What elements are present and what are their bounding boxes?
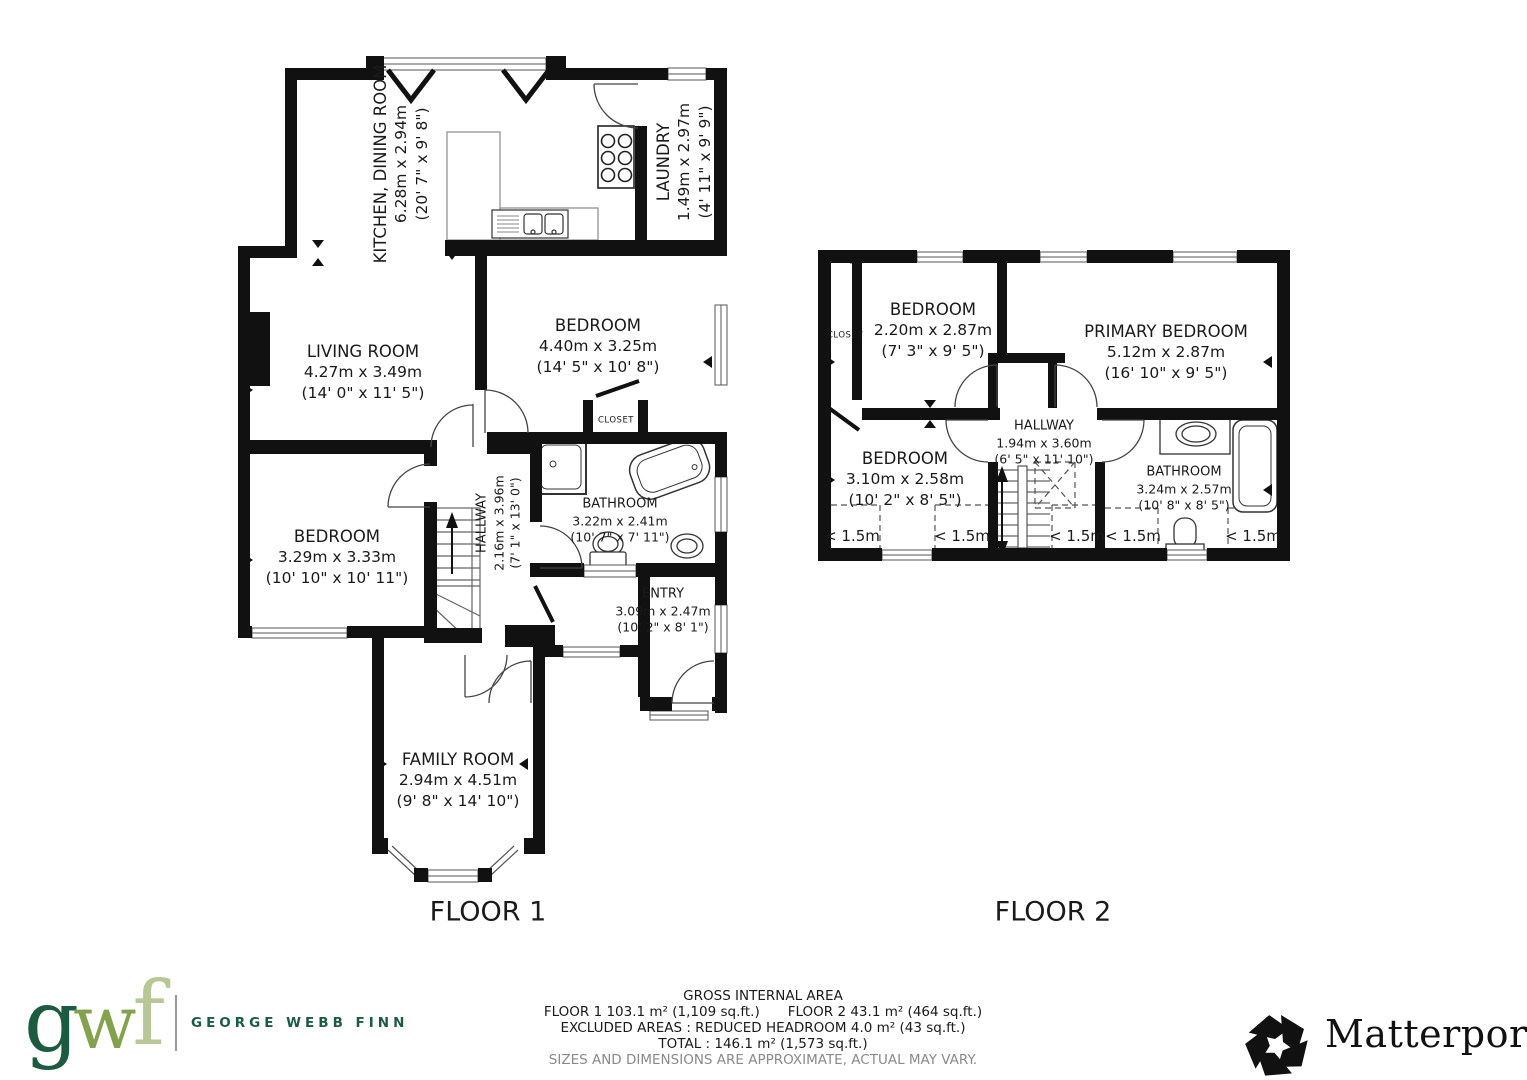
area-title: GROSS INTERNAL AREA (544, 989, 982, 1004)
room-label-bathroom-f1: BATHROOM 3.22m x 2.41m (10' 7" x 7' 11") (570, 496, 669, 545)
floorplan-canvas (0, 0, 1527, 1080)
room-label-kitchen: KITCHEN, DINING ROOM 6.28m x 2.94m (20' … (370, 65, 432, 264)
stove-icon (598, 126, 634, 188)
gwf-logo: g w f GEORGE WEBB FINN (24, 984, 408, 1061)
area-total: TOTAL : 146.1 m² (1,573 sq.ft.) (544, 1037, 982, 1052)
room-label-closet-f2: CLOSET (827, 330, 863, 341)
area-floors-line: FLOOR 1 103.1 m² (1,109 sq.ft.)FLOOR 2 4… (544, 1005, 982, 1020)
floor1-area: FLOOR 1 103.1 m² (1,109 sq.ft.) (544, 1005, 760, 1020)
bathtub-floor1-icon (625, 434, 714, 504)
staircase-floor2 (996, 466, 1050, 557)
floor2-area: FLOOR 2 43.1 m² (464 sq.ft.) (788, 1005, 982, 1020)
room-label-laundry: LAUNDRY 1.49m x 2.97m (4' 11" x 9' 9") (653, 103, 715, 221)
gross-internal-area-block: GROSS INTERNAL AREA FLOOR 1 103.1 m² (1,… (544, 988, 982, 1070)
matterport-wordmark: Matterport (1325, 1012, 1527, 1056)
room-label-closet-f1: CLOSET (598, 415, 634, 426)
staircase-floor1 (430, 508, 480, 635)
room-label-family-room: FAMILY ROOM 2.94m x 4.51m (9' 8" x 14' 1… (397, 749, 520, 811)
room-label-hallway-f1: HALLWAY 2.16m x 3.96m (7' 1" x 13' 0") (474, 475, 523, 570)
room-label-bedroom-top-f1: BEDROOM 4.40m x 3.25m (14' 5" x 10' 8") (537, 315, 660, 377)
shower-icon (536, 440, 586, 494)
matterport-logo: Matterport® (1243, 1012, 1527, 1056)
headroom-label-1: < 1.5m (824, 527, 880, 545)
headroom-label-5: < 1.5m (1225, 527, 1281, 545)
bathtub-floor2-icon (1233, 420, 1277, 512)
room-label-bathroom-f2: BATHROOM 3.24m x 2.57m (10' 8" x 8' 5") (1136, 464, 1231, 513)
bathroom-sink-floor1-icon (671, 534, 703, 558)
room-label-bedroom-top-f2: BEDROOM 2.20m x 2.87m (7' 3" x 9' 5") (874, 299, 992, 361)
room-label-bedroom-bottom-f2: BEDROOM 3.10m x 2.58m (10' 2" x 8' 5") (846, 448, 964, 510)
floor1-title: FLOOR 1 (430, 897, 547, 928)
area-disclaimer: SIZES AND DIMENSIONS ARE APPROXIMATE, AC… (544, 1053, 982, 1068)
room-label-entry: ENTRY 3.09m x 2.47m (10' 2" x 8' 1") (615, 586, 710, 635)
vanity-sink-floor2-icon (1160, 418, 1230, 454)
gwf-letter-w: w (73, 990, 136, 1057)
kitchen-sink-icon (492, 210, 568, 238)
gwf-divider (175, 995, 177, 1051)
area-excluded: EXCLUDED AREAS : REDUCED HEADROOM 4.0 m²… (544, 1021, 982, 1036)
headroom-label-4: < 1.5m (1105, 527, 1161, 545)
room-label-living-room: LIVING ROOM 4.27m x 3.49m (14' 0" x 11' … (302, 341, 425, 403)
room-label-hallway-f2: HALLWAY 1.94m x 3.60m (6' 5" x 11' 10") (994, 418, 1093, 467)
gwf-letter-f: f (132, 974, 165, 1053)
room-label-primary-bedroom: PRIMARY BEDROOM 5.12m x 2.87m (16' 10" x… (1084, 321, 1248, 383)
gwf-company-name: GEORGE WEBB FINN (191, 1015, 408, 1031)
walls-floor2 (818, 250, 1290, 561)
headroom-label-3: < 1.5m (1049, 527, 1105, 545)
headroom-label-2: < 1.5m (934, 527, 990, 545)
toilet-floor2-icon (1166, 518, 1204, 553)
floor2-plan (818, 250, 1290, 561)
room-label-bedroom-left-f1: BEDROOM 3.29m x 3.33m (10' 10" x 10' 11"… (266, 526, 409, 588)
floor2-title: FLOOR 2 (995, 897, 1112, 928)
gwf-letter-g: g (24, 984, 79, 1061)
